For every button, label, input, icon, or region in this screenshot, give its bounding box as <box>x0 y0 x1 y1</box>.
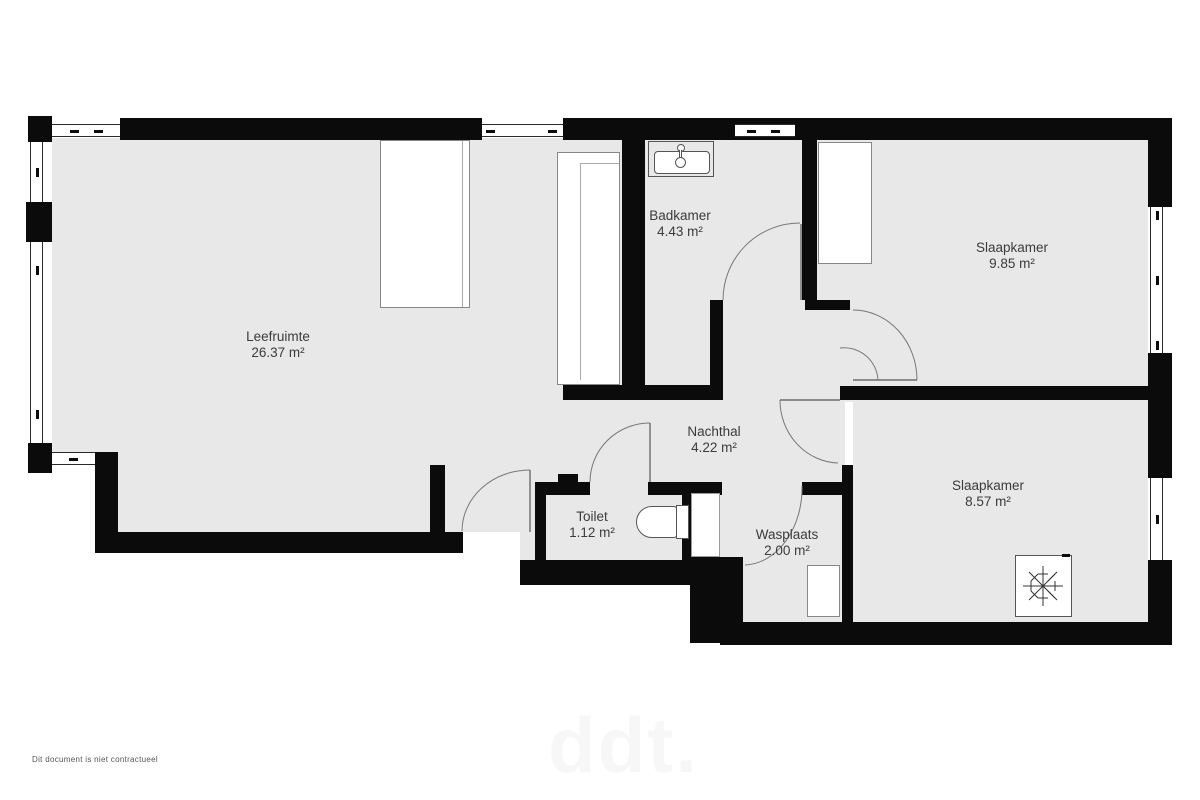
doors-and-symbols-layer <box>0 0 1200 800</box>
room-label-slaapkamer-2: Slaapkamer 8.57 m² <box>952 478 1024 510</box>
room-name: Wasplaats <box>756 527 819 543</box>
room-name: Slaapkamer <box>976 240 1048 256</box>
room-label-leefruimte: Leefruimte 26.37 m² <box>246 329 310 361</box>
watermark: ddt. <box>548 700 699 791</box>
door-badkamer <box>723 223 801 300</box>
room-area: 4.22 m² <box>687 440 740 456</box>
room-label-wasplaats: Wasplaats 2.00 m² <box>756 527 819 559</box>
door-entrance <box>462 470 530 532</box>
floor-plan: Leefruimte 26.37 m² Badkamer 4.43 m² Sla… <box>0 0 1200 800</box>
door-toilet <box>590 423 650 482</box>
room-label-nachthal: Nachthal 4.22 m² <box>687 424 740 456</box>
room-area: 2.00 m² <box>756 543 819 559</box>
room-name: Toilet <box>569 509 615 525</box>
room-name: Nachthal <box>687 424 740 440</box>
room-name: Leefruimte <box>246 329 310 345</box>
door-slaapkamer-2 <box>780 400 840 463</box>
room-area: 4.43 m² <box>649 224 711 240</box>
room-label-slaapkamer-1: Slaapkamer 9.85 m² <box>976 240 1048 272</box>
disclaimer-text: Dit document is niet contractueel <box>32 755 158 764</box>
room-area: 1.12 m² <box>569 525 615 541</box>
room-area: 26.37 m² <box>246 345 310 361</box>
room-label-toilet: Toilet 1.12 m² <box>569 509 615 541</box>
room-area: 8.57 m² <box>952 494 1024 510</box>
room-label-badkamer: Badkamer 4.43 m² <box>649 208 711 240</box>
room-name: Badkamer <box>649 208 711 224</box>
snowflake-icon <box>1023 566 1063 606</box>
door-slaapkamer-1 <box>840 310 917 380</box>
room-name: Slaapkamer <box>952 478 1024 494</box>
room-area: 9.85 m² <box>976 256 1048 272</box>
